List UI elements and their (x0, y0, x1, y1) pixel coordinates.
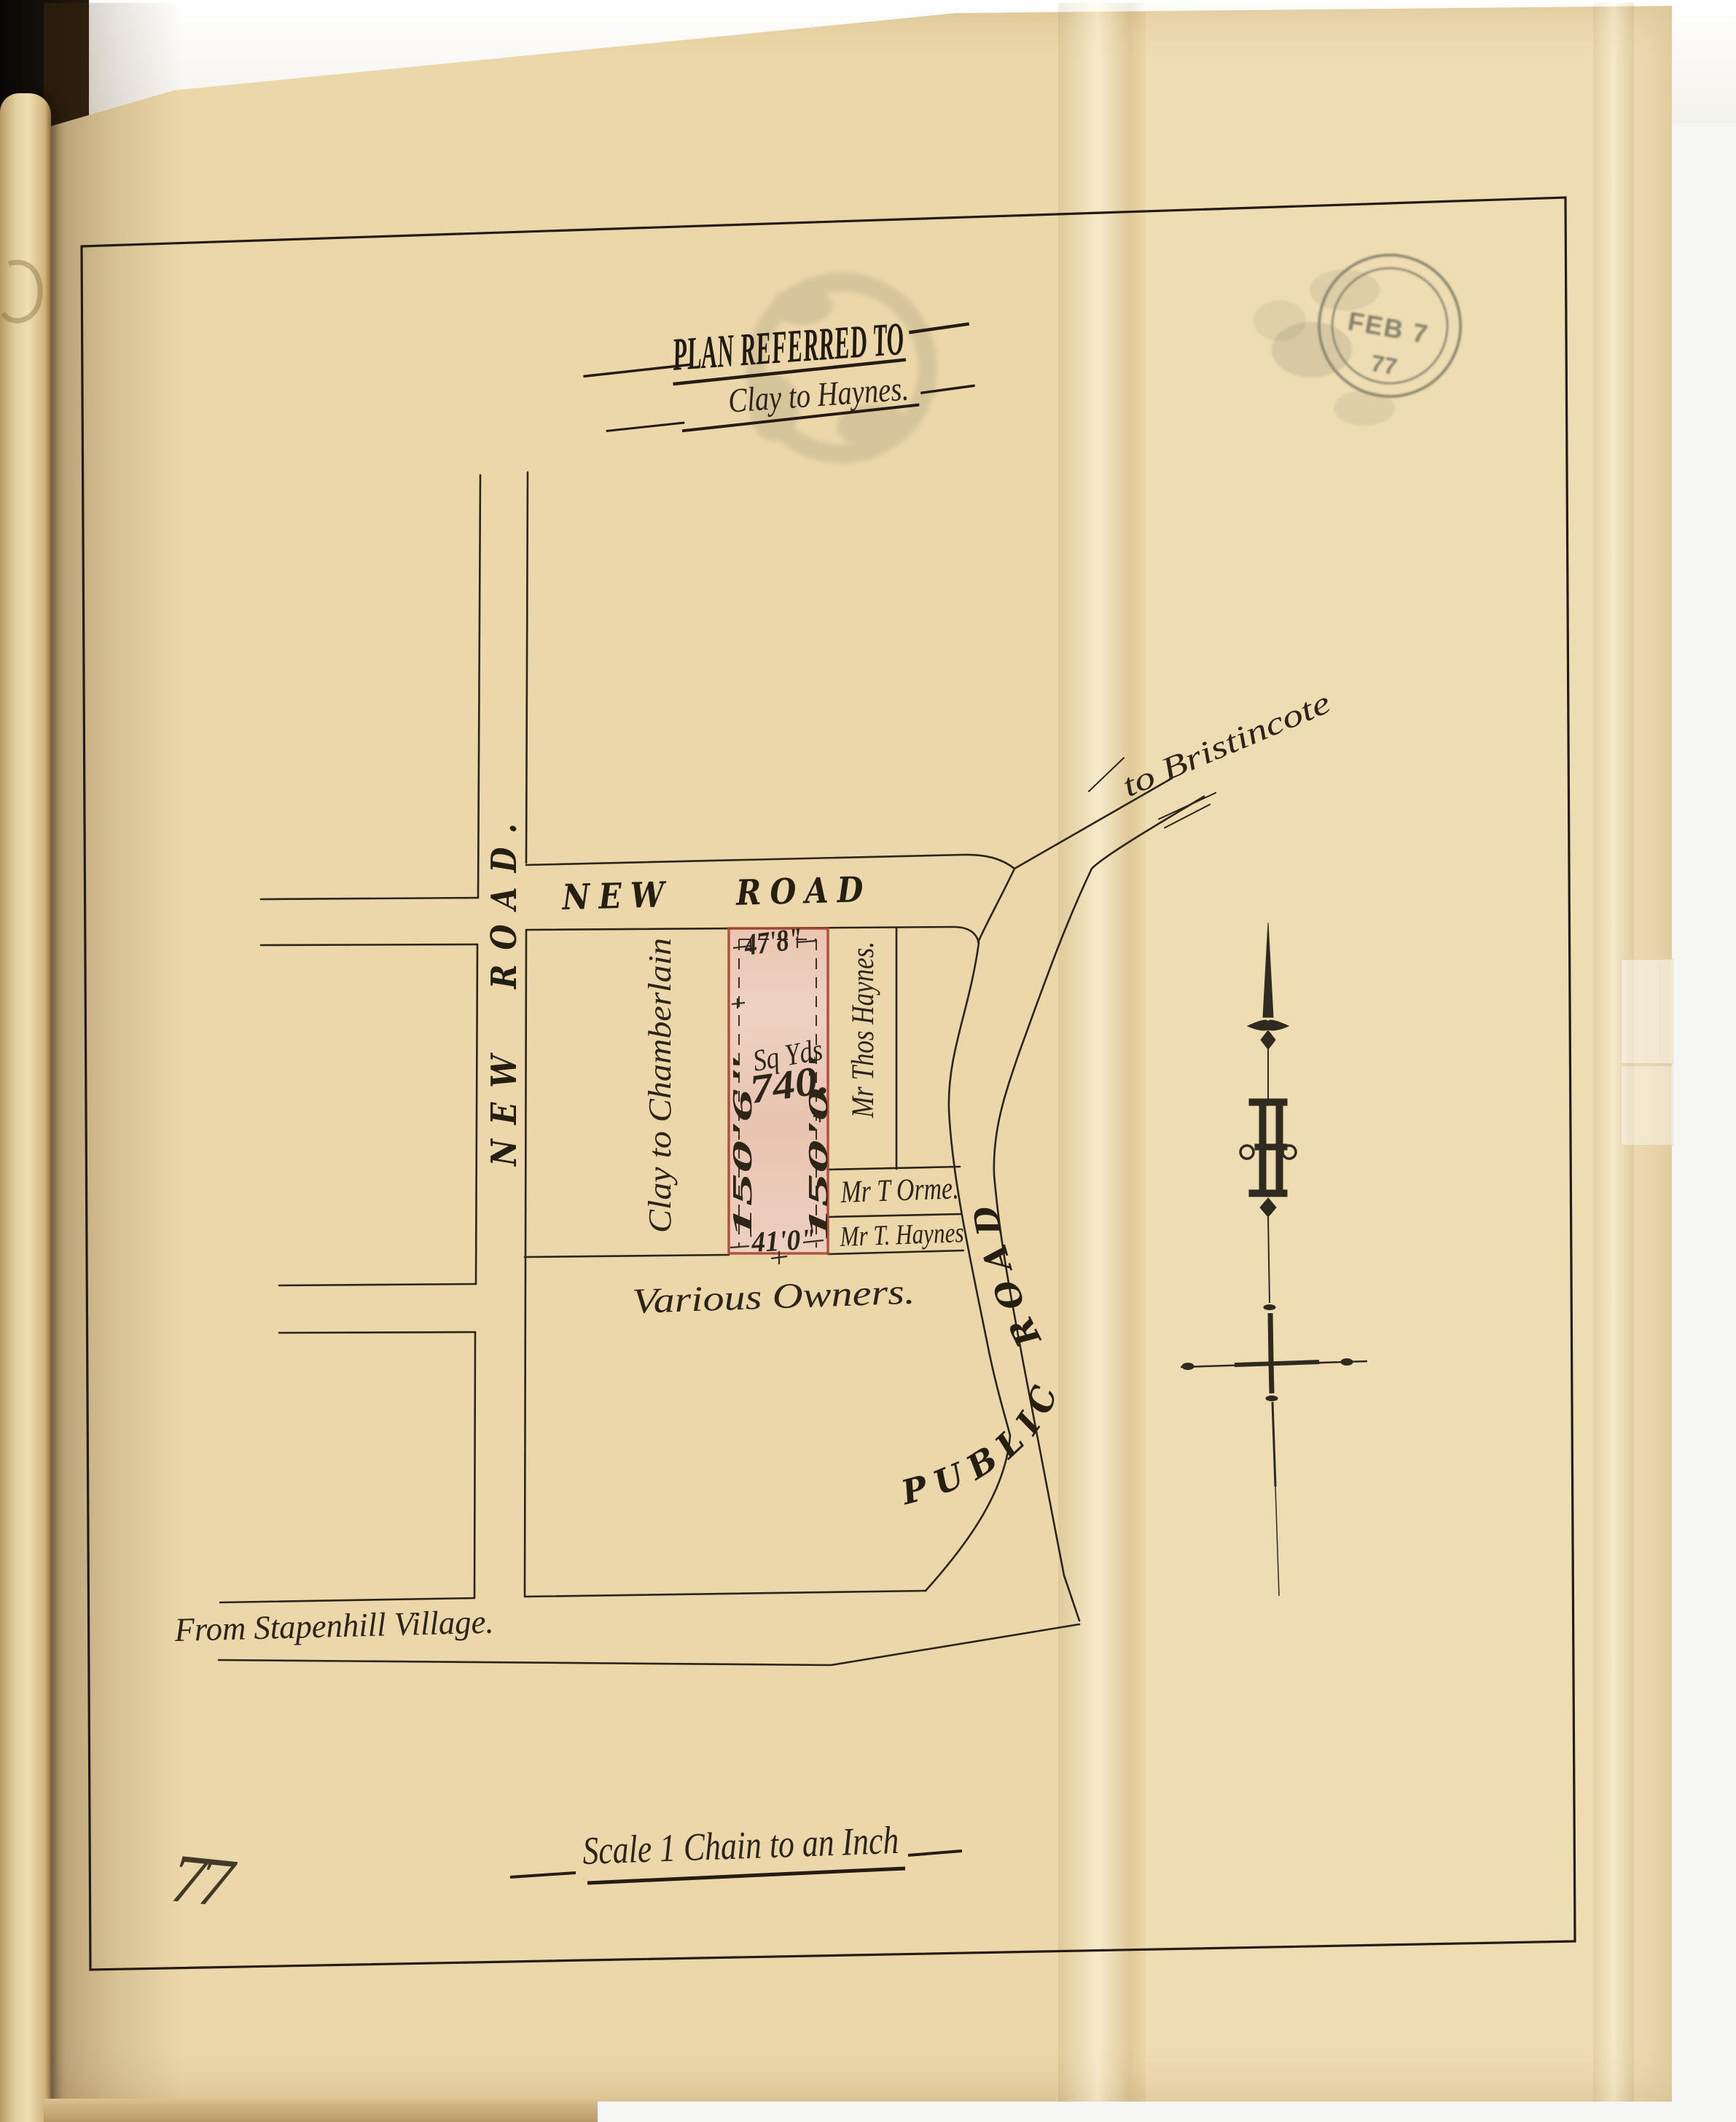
parcel-label-t-haynes: Mr T. Haynes (839, 1217, 964, 1253)
stamp-date: FEB 7 (1345, 306, 1431, 350)
subtitle-left-dash (606, 423, 685, 431)
road-label-new-road-vertical: NEW ROAD. (484, 809, 525, 1167)
plot-frontage-bottom: 41'0" (750, 1222, 816, 1258)
parcel-label-clay-to-chamberlain: Clay to Chamberlain (642, 938, 678, 1233)
scale-right-dash (908, 1851, 962, 1855)
ghost-letter (3, 262, 40, 321)
plan-drawing: PLAN REFERRED TO Clay to Haynes. FEB 7 7… (0, 0, 1736, 2122)
road-linework (219, 472, 1216, 1665)
road-label-new-road-horizontal: NEW ROAD (560, 869, 872, 918)
road-label-from-stapenhill: From Stapenhill Village. (173, 1603, 494, 1648)
date-stamp: FEB 7 77 (1254, 255, 1461, 426)
stamp-smudge (1334, 391, 1395, 426)
compass-cross-icon (1181, 1359, 1367, 1394)
scale-block: Scale 1 Chain to an Inch (510, 1818, 962, 1883)
plot-frontage-top: 47'8" (742, 922, 805, 963)
scale-left-dash (510, 1873, 576, 1877)
scanned-plan-page: PLAN REFERRED TO Clay to Haynes. FEB 7 7… (0, 0, 1736, 2122)
stamp-smudge (1254, 300, 1306, 341)
side-lane-stubs (261, 898, 478, 1333)
parcel-label-thos-haynes: Mr Thos Haynes. (846, 941, 880, 1119)
stamp-smudge (1310, 270, 1380, 310)
parcel-label-various-owners: Various Owners. (631, 1271, 915, 1321)
scale-caption: Scale 1 Chain to an Inch (582, 1818, 899, 1873)
conveyed-plot: 47'8" 150'6" 150'0" Sq Yds 740. 41'0" (727, 922, 834, 1264)
parcel-label-t-orme: Mr T Orme. (840, 1171, 959, 1210)
north-arrow-icon (1181, 923, 1367, 1596)
folio-annotation: 77 (168, 1839, 240, 1922)
road-label-to-bristincote: to Bristincote (1117, 684, 1336, 804)
stamp-year: 77 (1369, 350, 1399, 380)
page-title: PLAN REFERRED TO (670, 313, 906, 380)
